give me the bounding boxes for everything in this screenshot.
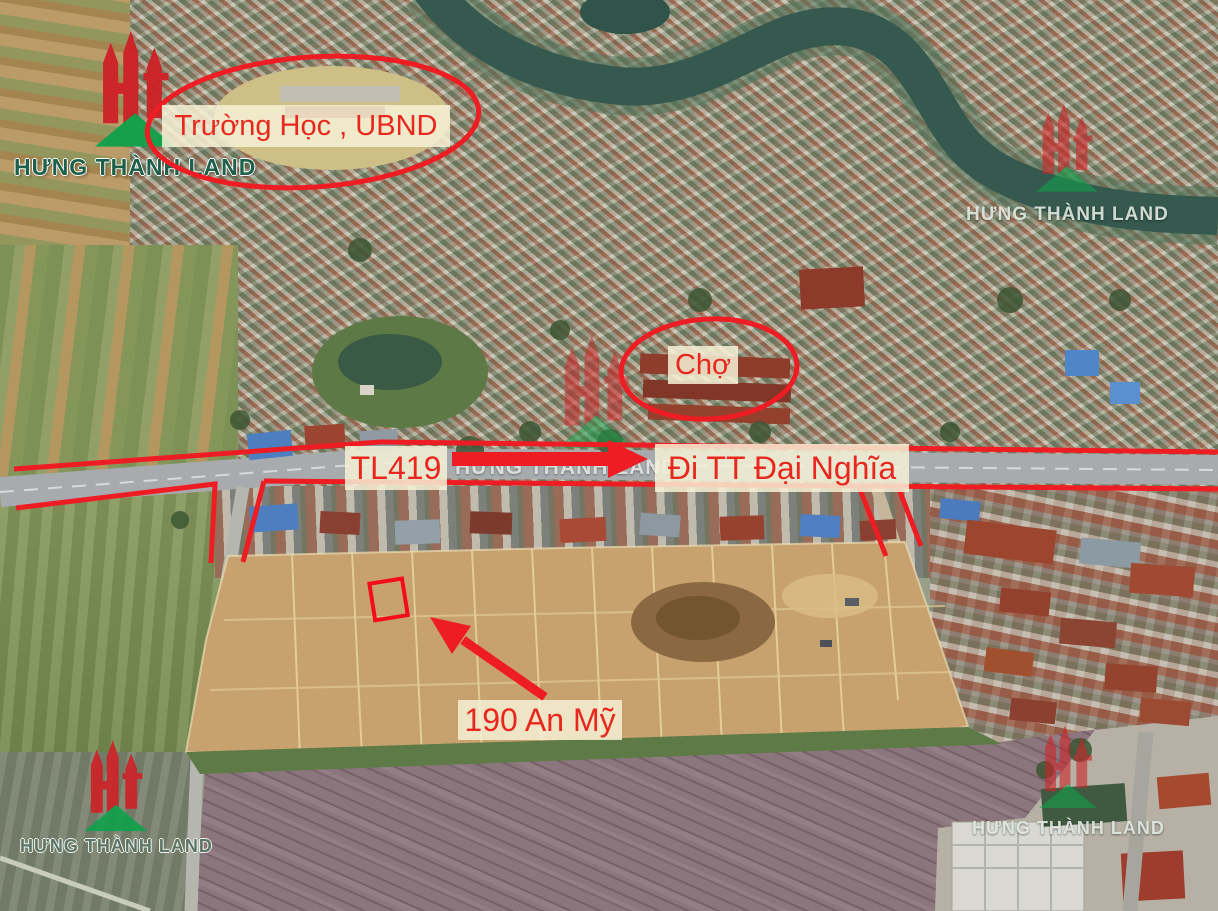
label-road-tl419: TL419 [345, 446, 447, 490]
park-pond [312, 316, 488, 428]
label-school-ubnd: Trường Học , UBND [162, 105, 450, 147]
label-address-190-an-my: 190 An Mỹ [458, 700, 622, 740]
annotated-aerial-map: HƯNG THÀNH LAND HƯNG THÀNH LAND HƯNG THÀ… [0, 0, 1218, 911]
river [430, 0, 1218, 216]
label-school-ubnd-text: Trường Học , UBND [175, 110, 438, 143]
label-address-190-an-my-text: 190 An Mỹ [464, 702, 615, 739]
label-market: Chợ [668, 346, 738, 384]
label-direction-dai-nghia-text: Đi TT Đại Nghĩa [668, 450, 896, 487]
label-market-text: Chợ [675, 349, 731, 382]
label-direction-dai-nghia: Đi TT Đại Nghĩa [655, 444, 909, 492]
label-road-tl419-text: TL419 [351, 450, 442, 487]
